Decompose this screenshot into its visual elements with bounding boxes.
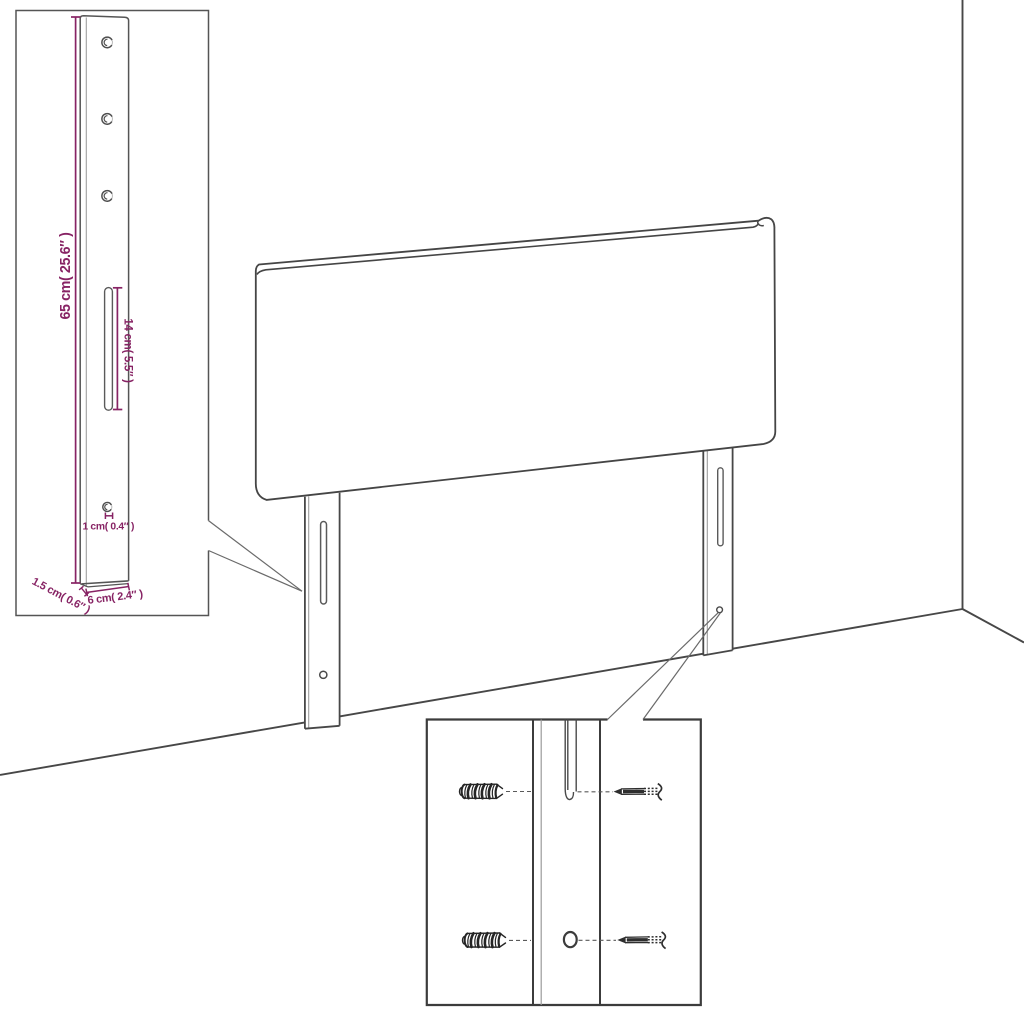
svg-text:65 cm( 25.6″ ): 65 cm( 25.6″ )	[58, 232, 74, 320]
svg-text:1 cm( 0.4″ ): 1 cm( 0.4″ )	[82, 522, 134, 533]
svg-text:14 cm( 5.5″ ): 14 cm( 5.5″ )	[121, 318, 133, 383]
svg-text:1.5 cm( 0.6″ ): 1.5 cm( 0.6″ )	[30, 576, 93, 617]
